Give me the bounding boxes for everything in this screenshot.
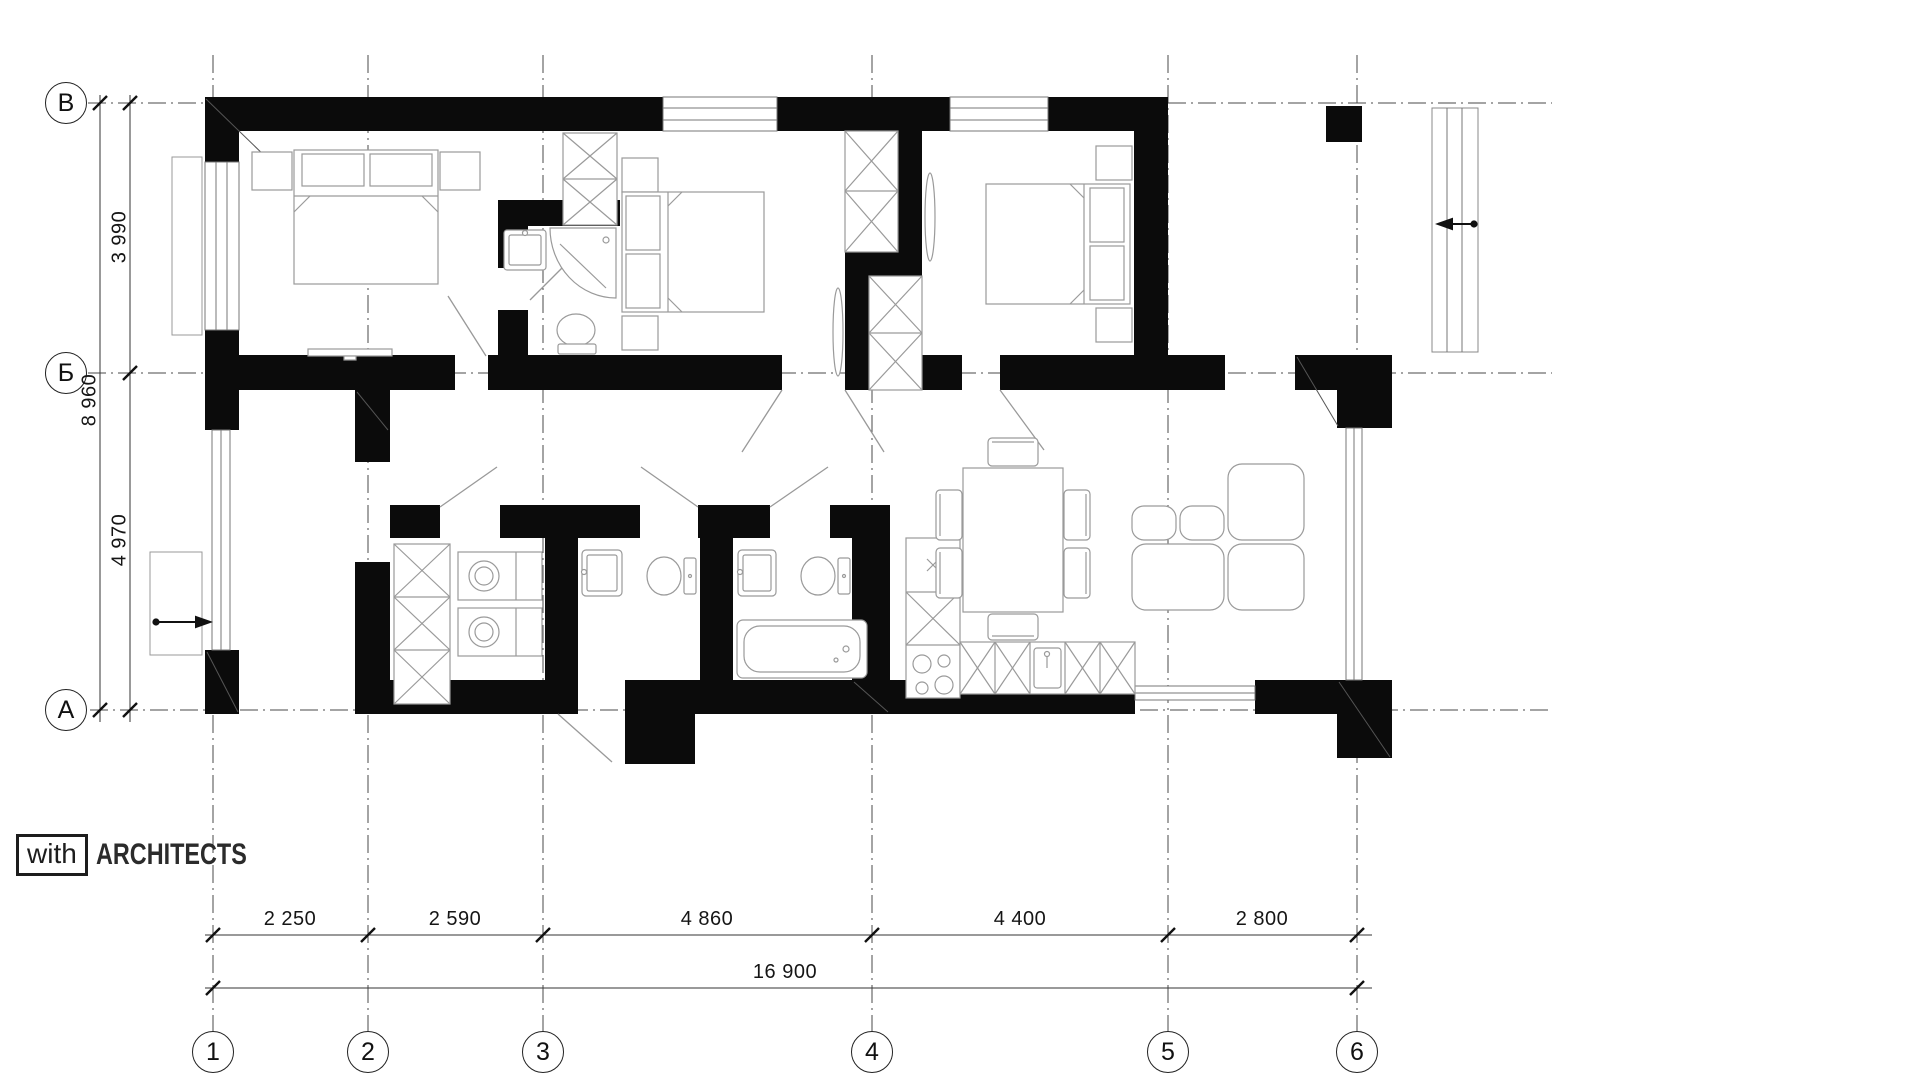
door-laundry <box>440 467 497 507</box>
sink-icon <box>582 550 623 596</box>
dim-left-1: 3 990 <box>109 211 132 264</box>
dim-bottom-4: 4 400 <box>994 908 1047 931</box>
window-top-2 <box>950 97 1048 131</box>
bedroom2-bed <box>622 158 764 350</box>
corner-shower-icon <box>550 228 616 298</box>
grid-bubble-row-a: А <box>45 689 87 731</box>
chair <box>1064 548 1090 598</box>
grid-label: 5 <box>1161 1038 1175 1067</box>
kitchen-sink-icon <box>1034 648 1061 688</box>
pillow <box>1090 188 1124 242</box>
grid-label: 6 <box>1350 1038 1364 1067</box>
window-living-right <box>1346 428 1362 680</box>
dim-bottom-1: 2 250 <box>264 908 317 931</box>
door-hall-left <box>742 390 782 452</box>
grid-label: 1 <box>206 1038 220 1067</box>
toilet-icon <box>557 314 596 354</box>
pillow <box>626 196 660 250</box>
grid-label: В <box>58 89 75 118</box>
pillow <box>626 254 660 308</box>
bathroom-fixtures <box>737 550 867 678</box>
washer-icon <box>458 552 542 600</box>
window-bottom-slider <box>1135 686 1255 700</box>
floor-plan-canvas: В Б А 1 2 3 4 5 6 2 250 2 590 4 860 4 40… <box>0 0 1920 1080</box>
terrace-screen <box>1432 108 1478 352</box>
door-bathroom <box>770 467 828 507</box>
dim-bottom-3: 4 860 <box>681 908 734 931</box>
grid-bubble-col-2: 2 <box>347 1031 389 1073</box>
sink-icon <box>504 230 546 270</box>
toilet-icon <box>647 557 696 595</box>
grid-bubble-col-1: 1 <box>192 1031 234 1073</box>
chair <box>1064 490 1090 540</box>
grid-bubble-col-5: 5 <box>1147 1031 1189 1073</box>
laundry-closet <box>394 544 450 704</box>
grid-label: 3 <box>536 1038 550 1067</box>
toilet-icon <box>801 557 850 595</box>
chair <box>988 438 1038 466</box>
wc-fixtures <box>582 550 697 596</box>
window-top-1 <box>663 97 777 131</box>
bathtub-icon <box>737 620 867 678</box>
entrance-pier <box>625 714 695 764</box>
grid-label: 2 <box>361 1038 375 1067</box>
wall-top-3 <box>1048 97 1168 131</box>
window-left-bedroom1 <box>172 157 239 335</box>
pillow <box>1090 246 1124 300</box>
wardrobe-ensuite <box>563 133 617 225</box>
wardrobe-door <box>925 173 935 261</box>
logo: with ARCHITECTS <box>16 834 289 876</box>
wall-top-1 <box>205 97 663 131</box>
grid-bubble-col-6: 6 <box>1336 1031 1378 1073</box>
chair <box>936 548 962 598</box>
nightstand <box>440 152 480 190</box>
grid-label: 4 <box>865 1038 879 1067</box>
pillow <box>370 154 432 186</box>
dim-bottom-2: 2 590 <box>429 908 482 931</box>
grid-bubble-col-4: 4 <box>851 1031 893 1073</box>
wall-top-2 <box>777 97 950 131</box>
logo-box: with <box>16 834 88 876</box>
dim-bottom-total: 16 900 <box>753 961 817 984</box>
door-hall-right <box>845 390 884 452</box>
dim-left-total: 8 960 <box>79 374 102 427</box>
chair <box>988 614 1038 640</box>
door-entrance <box>558 714 612 762</box>
door-bedroom1 <box>448 296 486 356</box>
grid-bubble-col-3: 3 <box>522 1031 564 1073</box>
grid-label: А <box>58 696 75 725</box>
door-wc <box>641 467 698 507</box>
wall-left-1 <box>205 131 239 162</box>
bedroom1-bed <box>252 150 480 284</box>
entry-arrow-left <box>153 617 210 627</box>
sofa <box>1132 464 1304 610</box>
grid-label: Б <box>58 359 74 388</box>
wardrobe-door <box>833 288 843 376</box>
nightstand <box>252 152 292 190</box>
nightstand <box>1096 146 1132 180</box>
wall-bedroom3-right <box>1134 131 1168 390</box>
nightstand <box>622 316 658 350</box>
nightstand <box>622 158 658 192</box>
dryer-icon <box>458 608 542 656</box>
pillow <box>302 154 364 186</box>
kitchen-counter-horizontal <box>960 642 1135 694</box>
grid-bubble-row-v: В <box>45 82 87 124</box>
dim-left-2: 4 970 <box>109 514 132 567</box>
bedroom3-bed <box>986 146 1132 342</box>
nightstand <box>1096 308 1132 342</box>
logo-brand: ARCHITECTS <box>96 838 247 872</box>
dining-table <box>963 468 1063 612</box>
sink-icon <box>738 550 777 596</box>
dim-bottom-5: 2 800 <box>1236 908 1289 931</box>
terrace-column <box>1326 106 1362 142</box>
chair <box>936 490 962 540</box>
